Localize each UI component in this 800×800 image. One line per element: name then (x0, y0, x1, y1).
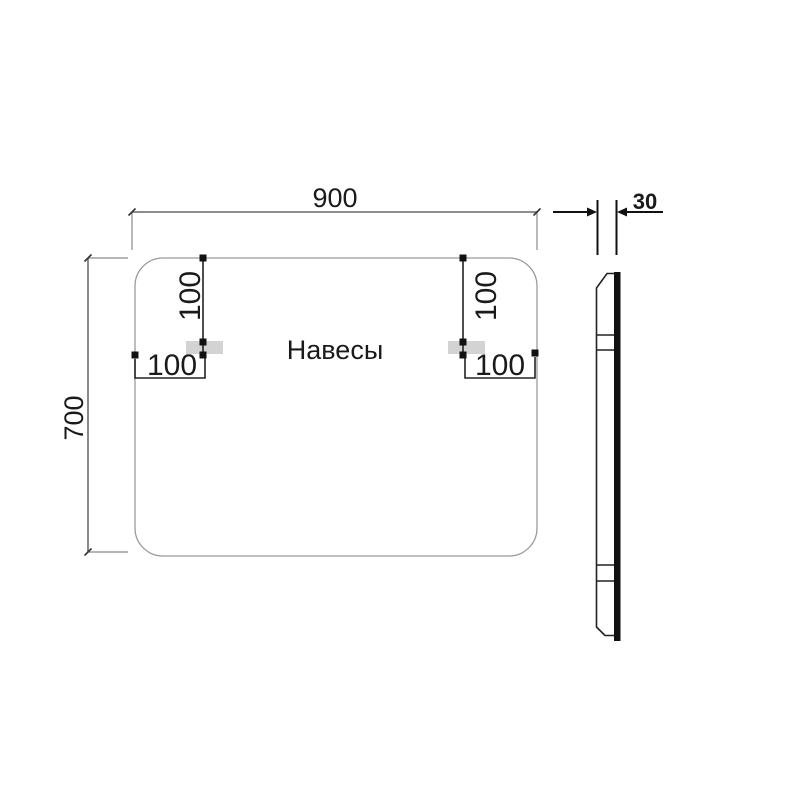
height-dimension: 700 (59, 255, 128, 556)
hangers-caption: Навесы (287, 335, 383, 365)
arrow-right-icon (587, 208, 597, 217)
hanger-marker-lower-right (460, 352, 467, 359)
left-hanger-group: 100 100 (132, 255, 224, 383)
right-hanger-group: 100 100 (448, 255, 539, 383)
right-hanger-top-dim-label: 100 (470, 271, 503, 321)
right-hanger-side-dim-label: 100 (475, 349, 525, 382)
mirror-technical-drawing: Навесы 900 700 100 100 (0, 0, 800, 800)
width-dim-label: 900 (312, 183, 357, 213)
arrow-left-icon (617, 208, 627, 217)
width-dimension: 900 (129, 183, 541, 250)
hanger-marker-lower-left (200, 352, 207, 359)
side-view (597, 272, 621, 641)
thickness-dimension: 30 (553, 189, 663, 255)
hanger-marker-upper-right (460, 339, 467, 346)
edge-marker-top-right (460, 255, 467, 262)
edge-marker-side-left (132, 352, 139, 359)
height-dim-label: 700 (59, 395, 89, 440)
edge-marker-side-right (532, 350, 539, 357)
thickness-dim-label: 30 (633, 189, 657, 214)
hanger-marker-upper-left (200, 339, 207, 346)
edge-marker-top-left (200, 255, 207, 262)
mirror-glass-edge (614, 272, 621, 641)
left-hanger-top-dim-label: 100 (174, 271, 207, 321)
left-hanger-side-dim-label: 100 (147, 349, 197, 382)
